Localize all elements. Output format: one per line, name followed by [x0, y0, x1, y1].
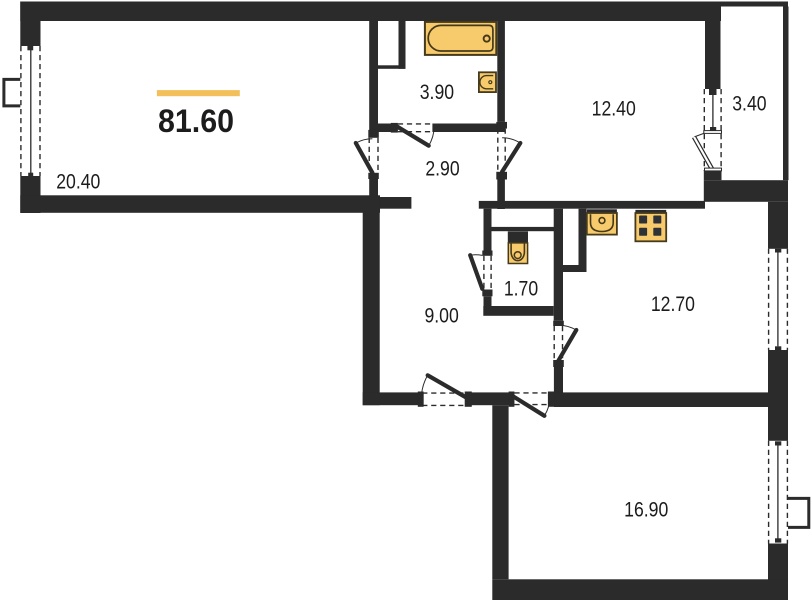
svg-text:3.40: 3.40	[732, 92, 767, 116]
svg-text:9.00: 9.00	[424, 304, 459, 328]
svg-text:2.90: 2.90	[425, 157, 460, 181]
svg-text:81.60: 81.60	[158, 103, 234, 139]
svg-text:12.40: 12.40	[592, 97, 636, 121]
svg-text:3.90: 3.90	[420, 80, 455, 104]
svg-text:20.40: 20.40	[56, 170, 100, 194]
svg-text:16.90: 16.90	[624, 498, 668, 522]
svg-text:1.70: 1.70	[504, 277, 539, 301]
svg-text:12.70: 12.70	[651, 293, 695, 317]
